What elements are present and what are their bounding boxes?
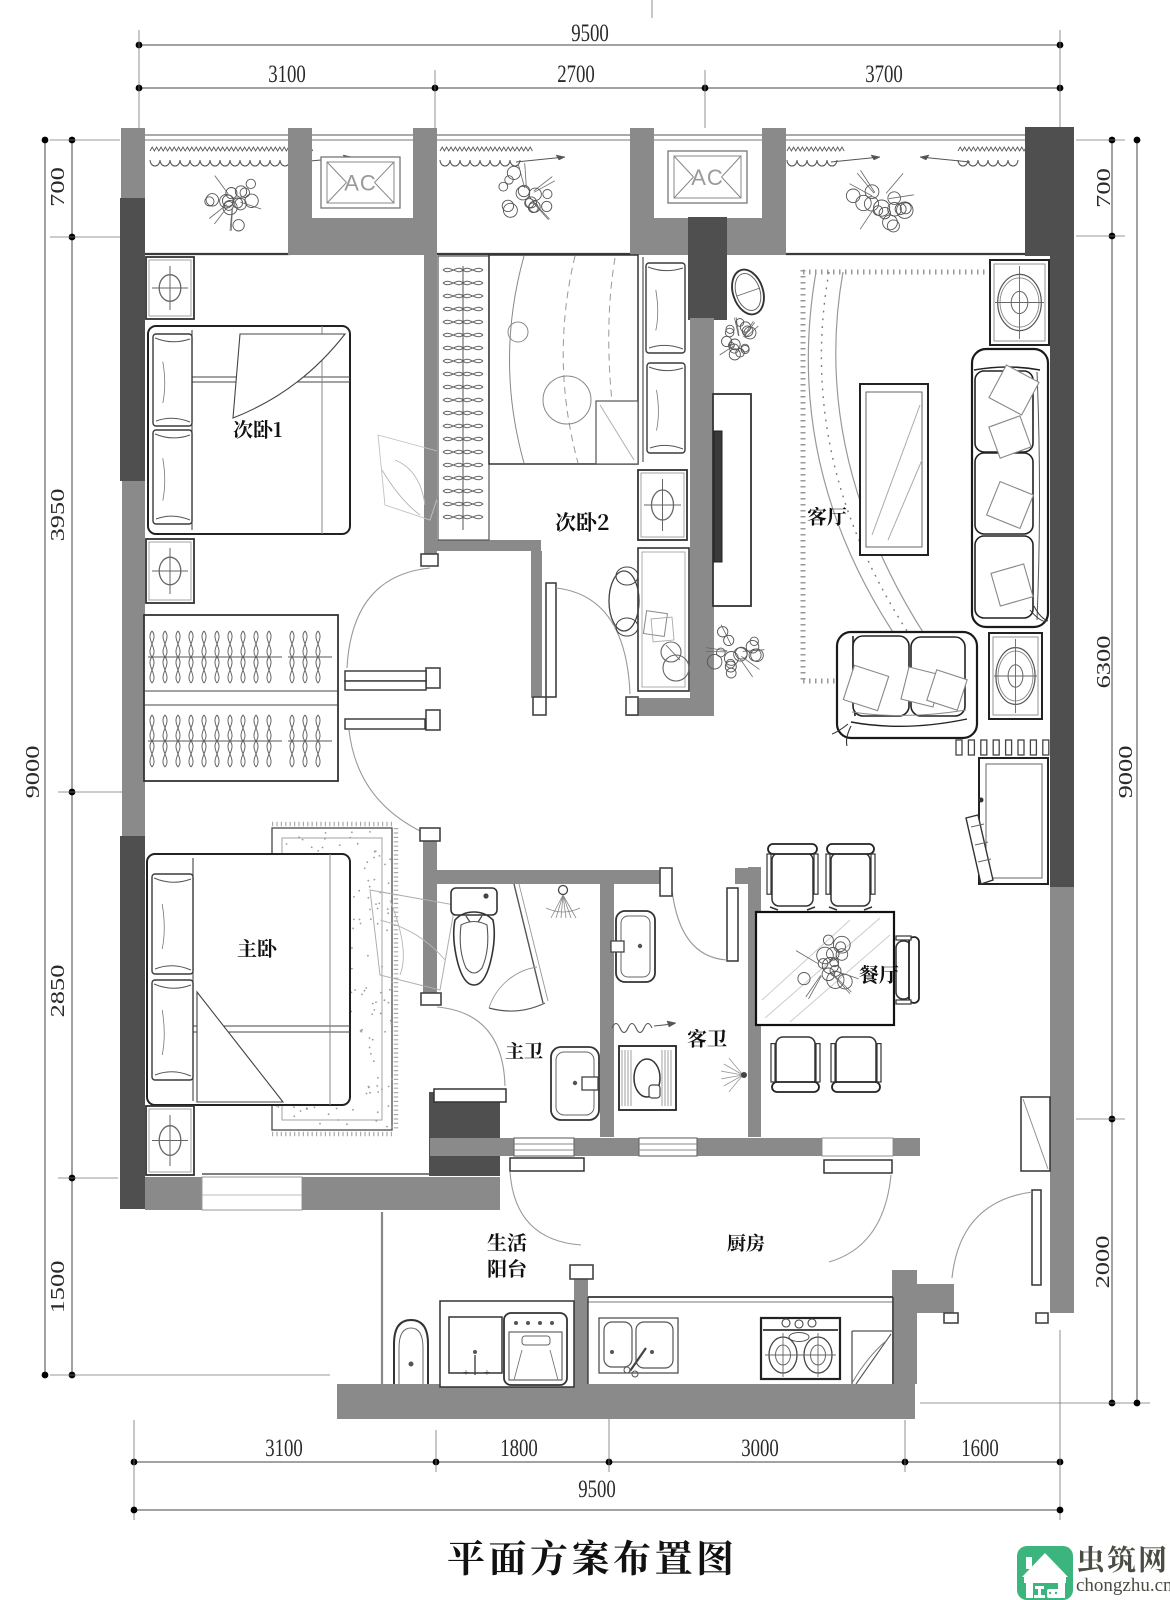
svg-text:3100: 3100 bbox=[265, 1435, 303, 1462]
svg-text:3700: 3700 bbox=[865, 61, 903, 88]
svg-text:3000: 3000 bbox=[741, 1435, 779, 1462]
svg-text:1800: 1800 bbox=[500, 1435, 538, 1462]
svg-text:3100: 3100 bbox=[268, 61, 306, 88]
svg-text:2850: 2850 bbox=[47, 965, 69, 1018]
svg-text:1600: 1600 bbox=[961, 1435, 999, 1462]
svg-text:AC: AC bbox=[344, 171, 377, 196]
svg-text:700: 700 bbox=[1093, 168, 1115, 208]
svg-text:AC: AC bbox=[691, 165, 724, 190]
svg-text:9000: 9000 bbox=[1115, 746, 1137, 799]
svg-text:9500: 9500 bbox=[578, 1476, 616, 1503]
svg-text:9000: 9000 bbox=[22, 746, 44, 799]
svg-text:chongzhu.cn: chongzhu.cn bbox=[1076, 1575, 1170, 1596]
svg-text:700: 700 bbox=[47, 167, 69, 207]
svg-text:2700: 2700 bbox=[557, 61, 595, 88]
svg-text:+: + bbox=[484, 1367, 490, 1379]
svg-text:2000: 2000 bbox=[1092, 1236, 1114, 1289]
svg-text:6300: 6300 bbox=[1093, 636, 1115, 689]
svg-text:1500: 1500 bbox=[47, 1261, 69, 1314]
svg-text:3950: 3950 bbox=[47, 489, 69, 542]
svg-text:9500: 9500 bbox=[571, 20, 609, 47]
svg-text:+: + bbox=[463, 1367, 469, 1379]
